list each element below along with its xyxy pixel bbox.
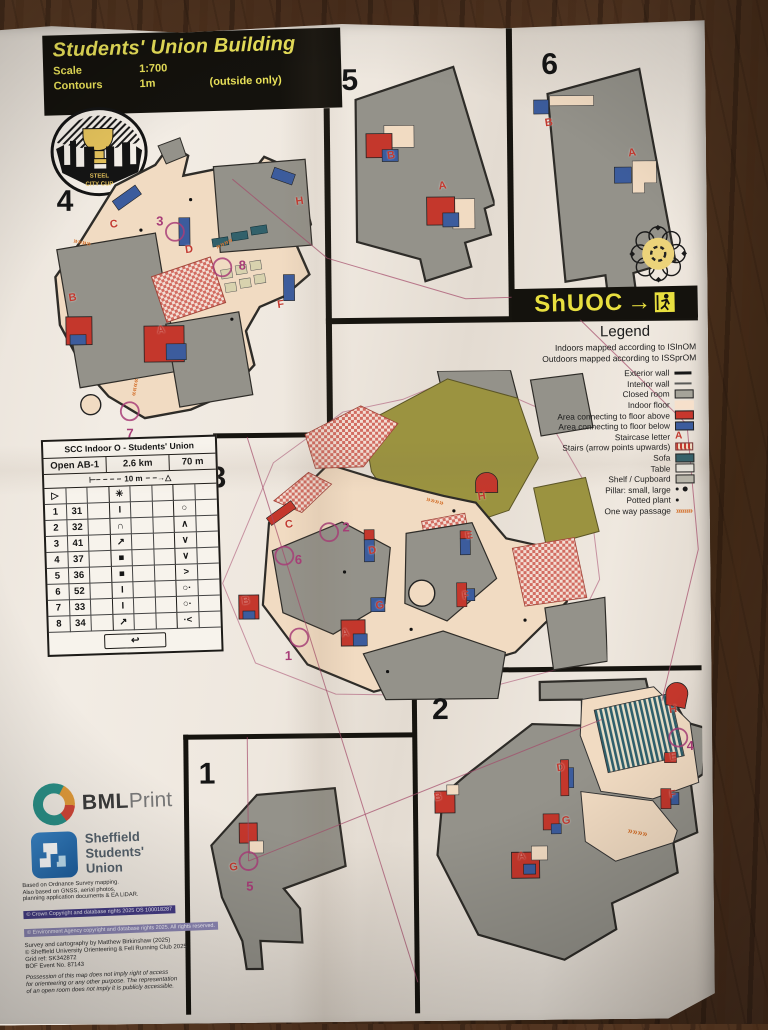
table-swatch xyxy=(675,463,697,472)
control-number: 4 xyxy=(687,738,694,753)
feature-symbol: ■ xyxy=(111,550,133,567)
control-order: 6 xyxy=(47,584,69,601)
control-order: 5 xyxy=(47,568,69,585)
detail-symbol: ○ xyxy=(174,500,196,517)
legend: Legend Indoors mapped according to ISInO… xyxy=(402,322,698,518)
map-sheet-paper: Students' Union Building Scale 1:700 Con… xyxy=(0,18,715,1026)
photo-of-orienteering-map: { "title_block": { "title": "Students' U… xyxy=(0,0,768,1024)
control-number: 2 xyxy=(342,519,349,534)
staircase-letter: B xyxy=(241,595,251,608)
control-order: 8 xyxy=(48,616,70,633)
start-feature-symbol: ✳ xyxy=(109,486,131,503)
staircase-letter: F xyxy=(276,298,284,311)
feature-symbol: ■ xyxy=(111,566,133,583)
floor-plan-section-2: »»»» xyxy=(414,670,706,1025)
control-order: 7 xyxy=(48,600,70,617)
course-name: Open AB-1 xyxy=(43,457,106,474)
staircase-letter: D xyxy=(184,243,194,256)
legend-intro-outdoors: Outdoors mapped according to ISSprOM xyxy=(402,352,696,366)
detail-symbol: ○· xyxy=(177,596,199,613)
staircase-letter: E xyxy=(669,750,678,763)
exterior-wall-swatch xyxy=(674,371,696,374)
control-code: 37 xyxy=(68,552,90,569)
control-order: 3 xyxy=(46,536,68,553)
detail-symbol: ∨ xyxy=(175,548,197,565)
staircase-letter-sample: A xyxy=(675,431,697,442)
control-number: 5 xyxy=(246,879,253,894)
feature-symbol: ↗ xyxy=(110,534,132,551)
su-text-line2: Students' xyxy=(85,844,144,861)
indoor-floor-swatch xyxy=(675,400,697,409)
staircase-letter: F xyxy=(462,589,470,602)
bml-wordmark-bold: BML xyxy=(81,790,129,815)
course-climb: 70 m xyxy=(169,454,215,470)
sofa-swatch xyxy=(675,453,697,462)
shelf-cupboard-swatch xyxy=(676,474,698,483)
staircase-letter: B xyxy=(544,116,554,129)
staircase-letter: G xyxy=(228,861,238,874)
section-number-5: 5 xyxy=(341,64,358,98)
control-code: 34 xyxy=(70,616,92,633)
rosette-icon xyxy=(629,224,688,283)
staircase-letter: A xyxy=(156,323,166,336)
control-code: 36 xyxy=(68,568,90,585)
staircase-letter: F xyxy=(669,788,677,801)
staircase-letter: D xyxy=(367,544,377,557)
control-order: 2 xyxy=(45,520,67,537)
staircase-letter: C xyxy=(284,518,294,531)
staircase-letter: A xyxy=(627,146,637,159)
staircase-letter: H xyxy=(295,195,305,208)
staircase-letter: G xyxy=(561,814,571,827)
control-number: 3 xyxy=(156,213,163,228)
section-number-6: 6 xyxy=(541,48,558,82)
control-number: 8 xyxy=(239,258,246,273)
interior-wall-swatch xyxy=(675,382,697,384)
legend-item: One way passage»»»» xyxy=(404,505,698,519)
detail-symbol: ∨ xyxy=(175,532,197,549)
control-code: 31 xyxy=(66,504,88,521)
exit-running-man-icon xyxy=(653,291,675,313)
section-number-2: 2 xyxy=(432,693,449,727)
feature-symbol: I xyxy=(109,502,131,519)
staircase-letter: E xyxy=(465,529,474,542)
staircase-letter: D xyxy=(556,761,566,774)
map-title: Students' Union Building xyxy=(52,32,331,63)
shuoc-arrow-icon: → xyxy=(627,290,651,314)
students-union-logo: Sheffield Students' Union xyxy=(31,829,145,879)
control-code: 52 xyxy=(69,584,91,601)
control-rows: ▷ ✳ 1 31 I ○ 2 32 ∩ ∧ 3 41 ↗ ∨ xyxy=(44,484,220,633)
shuoc-banner: ShUOC → xyxy=(511,286,698,322)
credits-block: Based on Ordnance Survey mapping. Also b… xyxy=(22,876,220,996)
feature-symbol: I xyxy=(112,582,134,599)
staircase-letter: A xyxy=(517,850,527,863)
staircase-letter: H xyxy=(668,703,678,716)
detail-symbol: ·< xyxy=(177,612,199,629)
finish-symbol: ↩ xyxy=(104,632,166,649)
control-number: 6 xyxy=(295,552,302,567)
bml-wordmark-light: Print xyxy=(128,788,172,813)
staircase-letter: G xyxy=(375,599,385,612)
legend-title: Legend xyxy=(402,323,650,343)
control-descriptions-card: SCC Indoor O - Students' Union Open AB-1… xyxy=(41,435,224,657)
one-way-passage-glyphs: »»»» xyxy=(676,505,698,515)
control-order: 4 xyxy=(46,552,68,569)
bml-print-logo: BMLPrint xyxy=(32,779,173,826)
control-code: 32 xyxy=(67,520,89,537)
feature-symbol: I xyxy=(112,598,134,615)
floor-below-swatch xyxy=(675,421,697,430)
feature-symbol: ∩ xyxy=(110,518,132,535)
control-number: 1 xyxy=(285,648,292,663)
start-symbol: ▷ xyxy=(44,488,66,505)
closed-room-swatch xyxy=(675,389,697,398)
staircase-letter: B xyxy=(433,791,443,804)
staircase-letter: C xyxy=(109,218,119,231)
control-order: 1 xyxy=(45,504,67,521)
shuoc-wordmark: ShUOC xyxy=(534,291,623,317)
environment-agency-line: © Environment Agency copyright and datab… xyxy=(24,921,218,936)
control-code: 41 xyxy=(67,536,89,553)
scale-value: 1:700 xyxy=(139,61,209,75)
staircase-letter: A xyxy=(438,179,448,192)
students-union-badge-icon xyxy=(31,831,79,879)
potted-plant-dot xyxy=(676,498,698,501)
staircase-letter: B xyxy=(386,149,396,162)
section-number-4: 4 xyxy=(56,185,73,219)
control-code: 33 xyxy=(69,600,91,617)
shuoc-rosette-logo xyxy=(629,224,688,283)
detail-symbol: ○· xyxy=(176,580,198,597)
stairs-swatch xyxy=(675,443,697,451)
staircase-letter: A xyxy=(340,626,350,639)
pillar-dots xyxy=(676,487,698,492)
feature-symbol: ↗ xyxy=(113,614,135,631)
course-length: 2.6 km xyxy=(106,455,169,472)
su-text-line3: Union xyxy=(86,859,145,876)
section-number-1: 1 xyxy=(198,757,215,791)
staircase-letter: B xyxy=(68,291,78,304)
scale-label: Scale xyxy=(53,63,139,77)
floor-above-swatch xyxy=(675,411,697,420)
detail-symbol: ∧ xyxy=(174,516,196,533)
start-distance: 10 m xyxy=(124,474,143,484)
detail-symbol: > xyxy=(176,564,198,581)
bml-donut-icon xyxy=(32,783,76,827)
